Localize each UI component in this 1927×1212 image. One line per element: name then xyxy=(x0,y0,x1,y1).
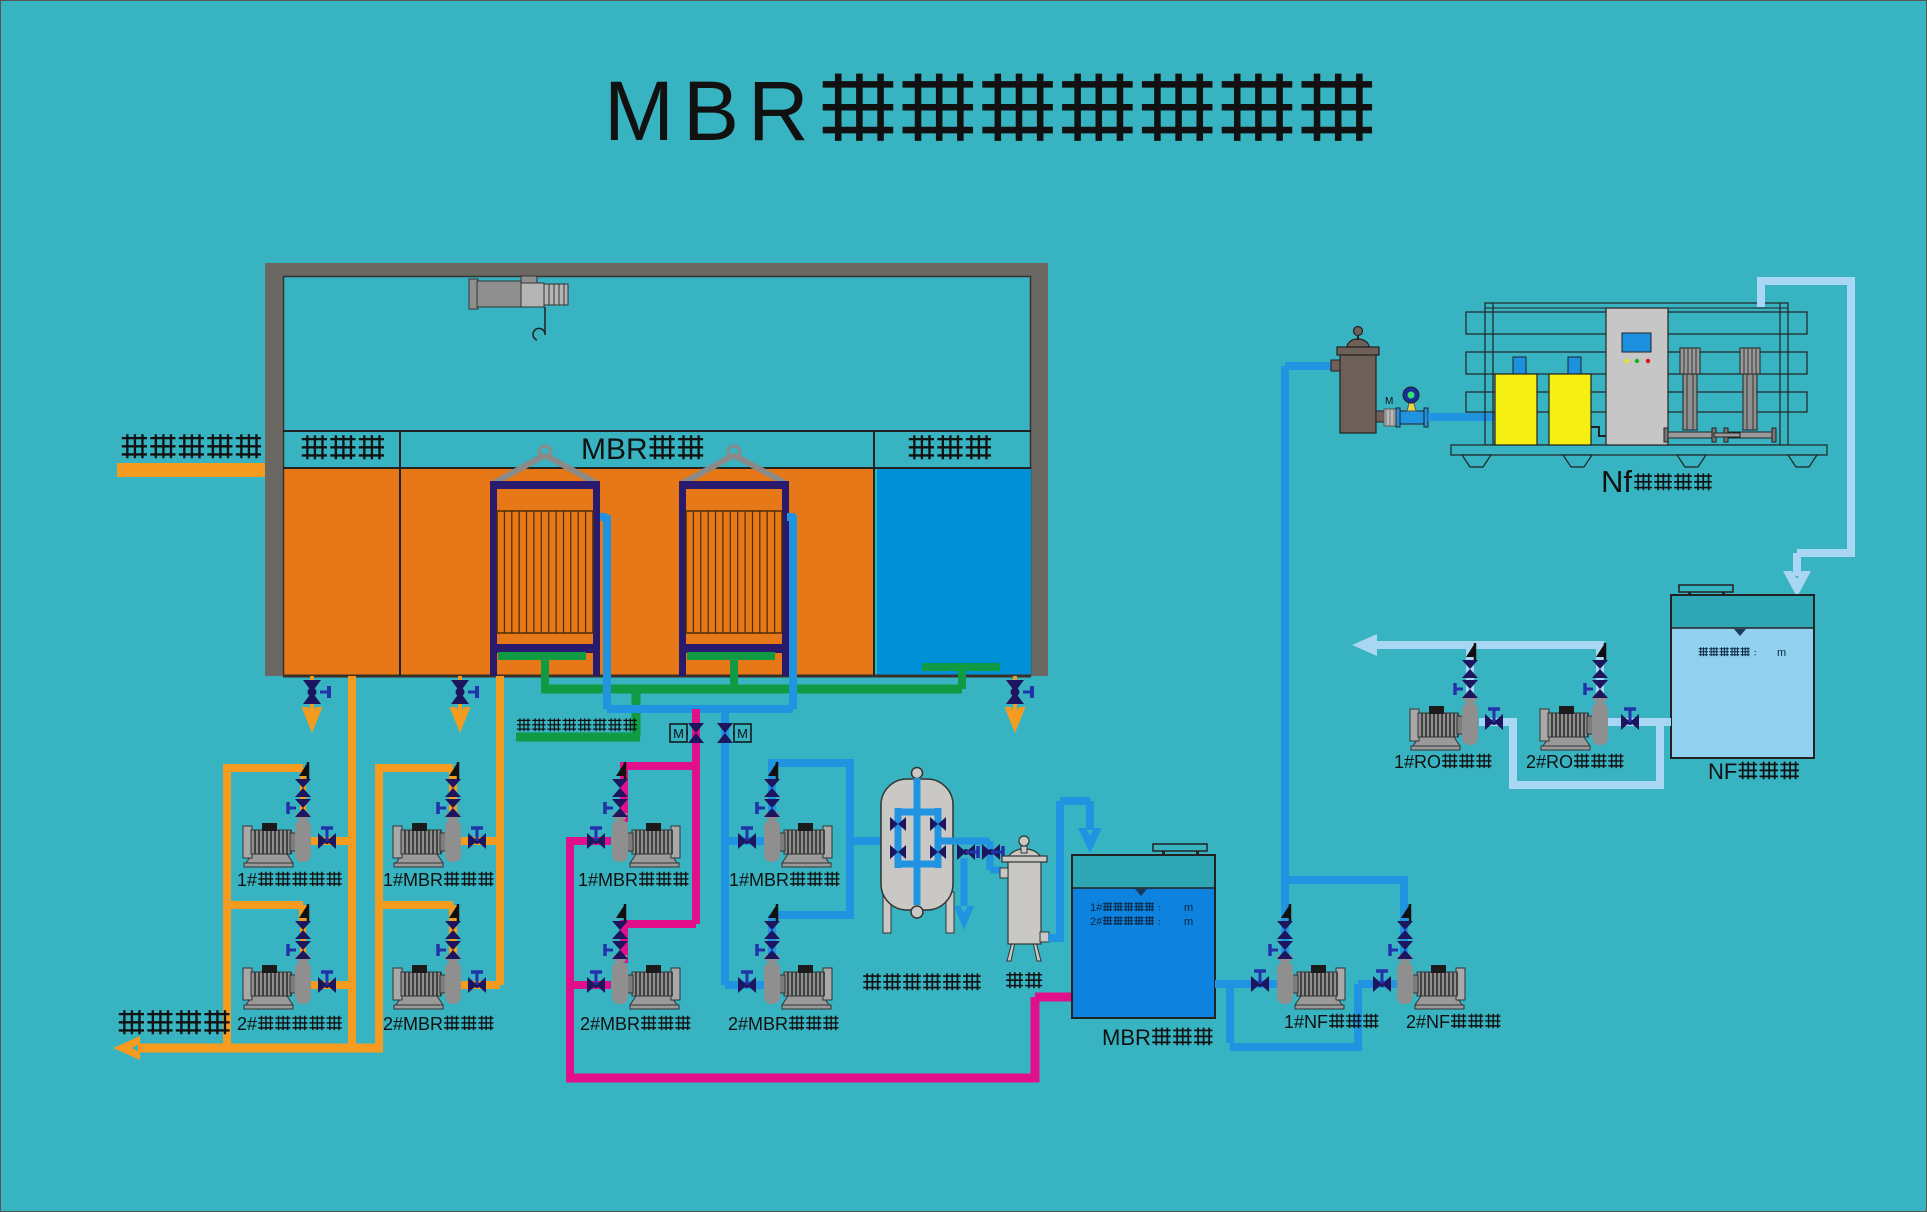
svg-text:M: M xyxy=(1385,396,1393,407)
svg-text:M: M xyxy=(673,726,684,741)
svg-text:Nf: Nf xyxy=(1601,464,1632,499)
svg-text:m: m xyxy=(1184,916,1193,928)
svg-text:m: m xyxy=(1184,902,1193,914)
svg-text:M: M xyxy=(737,726,748,741)
svg-text:m: m xyxy=(1777,647,1786,659)
